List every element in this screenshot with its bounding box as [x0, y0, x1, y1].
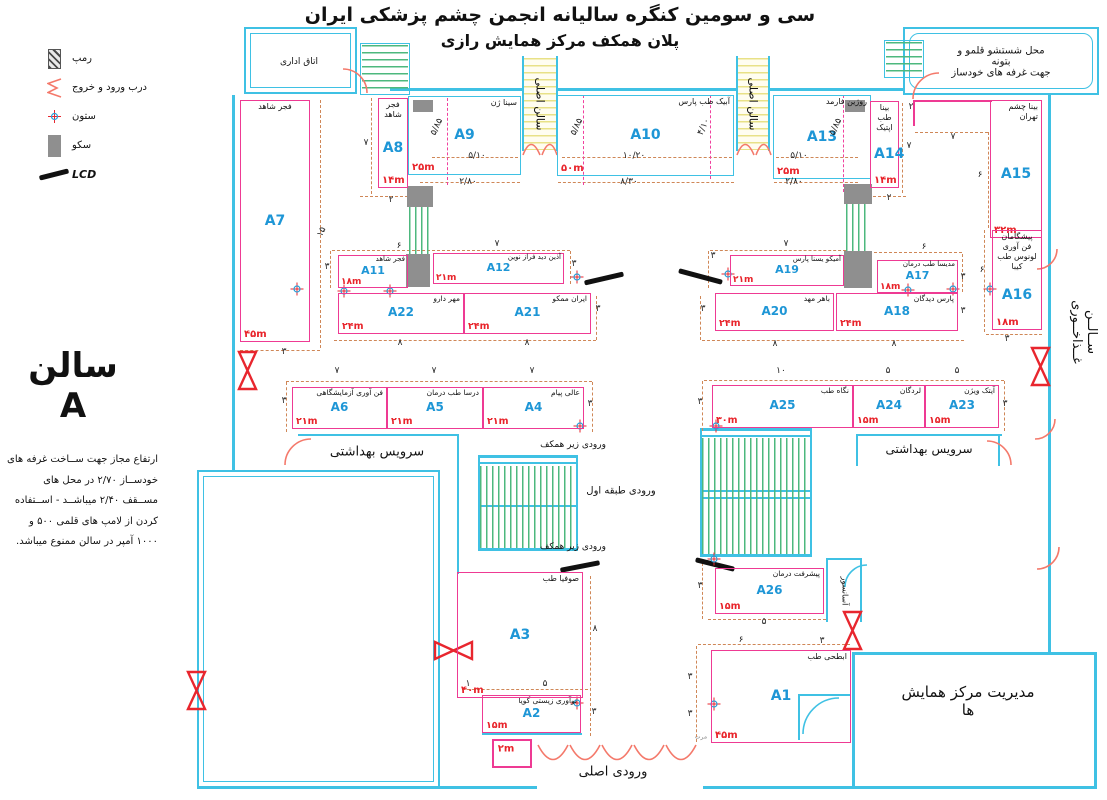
dim-label: ۵/۱۰: [790, 151, 808, 161]
dim-label: ۵/۱۰: [468, 151, 486, 161]
dimension-line: [590, 576, 591, 696]
dim-label: ۳: [1005, 334, 1010, 344]
booth-A5: درسا طب درمانA5۲۱m: [387, 387, 483, 429]
booth-company-label: پیشگامان فن آوری لونوس طب کیبا: [996, 232, 1038, 272]
door-arc-icon: [912, 72, 940, 104]
door-arc-icon: [338, 68, 368, 94]
booth-id-label: A16: [996, 287, 1038, 303]
wall-segment: [852, 652, 1097, 655]
booth-company-label: مدیسا طب درمان: [880, 261, 955, 268]
dimension-line: [704, 380, 1004, 381]
booth-A9: سینا ژنA9۲۵m: [408, 96, 521, 175]
booth-id-label: A22: [342, 305, 460, 319]
booth-A15: بینا چشم تهرانA15۳۲m: [990, 100, 1042, 238]
door-arcs-icon: [521, 140, 559, 161]
basement-entry-label-2: ورودی زیر همکف: [540, 542, 606, 552]
wall-box: [203, 476, 434, 782]
dimension-line: [360, 196, 408, 197]
dim-label: ۶: [739, 635, 744, 645]
construction-notes: ارتفاع مجاز جهت ســاخت غرفه های خودســاز…: [6, 450, 158, 553]
wc-left-label: سرویس بهداشتی: [330, 445, 424, 460]
dimension-line: [596, 296, 597, 340]
dimension-line: [708, 251, 709, 288]
dimension-line: [698, 644, 850, 645]
legend-row-platform: سکو: [36, 131, 147, 160]
dim-label: ۳: [688, 709, 693, 719]
booth-id-label: A5: [391, 400, 479, 414]
lcd-bar: [560, 560, 600, 573]
booth-company-label: بینا چشم تهران: [994, 102, 1038, 122]
dimension-line: [286, 381, 592, 382]
booth-company-label: فجر شاهد: [341, 256, 405, 263]
platform: [844, 184, 872, 204]
mert-label: مرت: [695, 734, 707, 741]
dim-label: ۸: [525, 338, 530, 348]
booth-area-label: ۴۵m: [244, 329, 306, 340]
booth-company-label: باهر مهد: [719, 295, 830, 303]
stairs-hatch: [362, 45, 408, 93]
dimension-line: [286, 382, 287, 432]
booth-id-label: A11: [341, 265, 405, 276]
wall-segment: [390, 88, 524, 91]
wc-right-label: سرویس بهداشتی: [885, 442, 972, 456]
booth-area-label: ۴۵m: [715, 730, 847, 741]
congress-title: سی و سومین کنگره سالیانه انجمن چشم پزشکی…: [270, 4, 850, 26]
main-entrance-label: ورودی اصلی: [579, 765, 648, 780]
booth-company-label: روژین فارمد: [777, 97, 867, 107]
legend-row-column: ستون: [36, 102, 147, 131]
booth-area-label: ۲۵m: [777, 166, 867, 177]
dim-label: ۱: [466, 679, 471, 689]
dim-label: ۳: [688, 672, 693, 682]
booth-id-label: A7: [244, 213, 306, 229]
booth-area-label: ۱۵m: [929, 415, 995, 426]
booth-id-label: A4: [487, 400, 580, 414]
dim-label: ۲: [389, 195, 394, 205]
dim-label: ۳: [325, 262, 330, 272]
booth-id-label: A1: [715, 688, 847, 704]
dim-label: ۲: [909, 102, 914, 112]
booth-id-label: A13: [777, 129, 867, 145]
admin-office-label: اتاق اداری: [280, 57, 318, 67]
dim-label: ۳: [282, 396, 287, 406]
column-icon: [708, 551, 721, 570]
dim-label: ۵: [955, 366, 960, 376]
stairs-hatch: [886, 42, 922, 76]
booth-id-label: A18: [840, 304, 954, 318]
dimension-line: [371, 98, 372, 194]
booth-area-label: ۲۱m: [733, 276, 841, 285]
booth-company-label: پیشرفت درمان: [719, 570, 820, 578]
booth-A11: فجر شاهدA11۱۸m: [338, 255, 408, 288]
booth-id-label: A8: [382, 140, 404, 156]
dim-label: ۸: [398, 338, 403, 348]
column-icon: [571, 269, 584, 288]
booth-company-label: آیتک ویژن: [929, 387, 995, 395]
dim-label: ۷: [951, 132, 956, 142]
booth-company-label: ایران ممکو: [468, 295, 587, 303]
booth-id-label: A3: [461, 627, 579, 643]
dim-label: ۷: [495, 239, 500, 249]
booth-id-label: A6: [296, 400, 383, 414]
booth-company-label: فجر شاهد: [382, 100, 404, 120]
dim-label: ۲/۸۰: [459, 177, 477, 187]
door-arcs-icon: [735, 140, 773, 161]
lcd-bar: [584, 272, 624, 286]
booth-area-label: ۱۸m: [880, 283, 955, 292]
main-hall-label-1: سالن اصلی: [534, 78, 547, 131]
wall-segment: [852, 652, 855, 788]
booth-id-label: A2: [486, 706, 577, 720]
booth-A14: بینا طب اپتیکA14۱۴m: [870, 101, 899, 188]
dim-label: ۷: [907, 141, 912, 151]
booth-A18: پارس دیدگانA18۲۴m: [836, 293, 958, 331]
dim-label: ۲/۸۰: [785, 177, 803, 187]
dim-label: ۳: [820, 636, 825, 646]
booth-area-label: ۵۰m: [561, 163, 730, 174]
dim-label: ۳: [698, 581, 703, 591]
wall-segment: [768, 56, 770, 151]
dim-label: ۶: [978, 170, 983, 180]
booth-A3: صوفیا طبA3۴۰m: [457, 572, 583, 698]
platform-icon: [36, 135, 72, 157]
dim-label: ۸/۳۰: [620, 177, 638, 187]
column-icon: [36, 110, 72, 123]
hall-title: سالن A: [14, 346, 132, 426]
dim-label: ۵: [543, 679, 548, 689]
wall-segment: [232, 95, 235, 472]
booth-id-label: A17: [880, 270, 955, 281]
dimension-line: [696, 646, 697, 742]
main-hall-label-2: سالن اصلی: [747, 78, 760, 131]
booth-area-label: ۲۱m: [436, 274, 561, 283]
legend-label-platform: سکو: [72, 140, 91, 151]
wall-segment: [478, 455, 578, 458]
booth-A2: نوآوری زیستی گویاA2۱۵m: [482, 695, 581, 733]
booth-area-label: ۱۵m: [486, 720, 577, 731]
basement-entry-label-1: ورودی زیر همکف: [540, 440, 606, 450]
booth-company-label: صوفیا طب: [461, 574, 579, 584]
dim-label: ۸: [892, 339, 897, 349]
booth-A24: لردگانA24۱۵m: [853, 385, 925, 428]
door-arc-icon: [982, 440, 1012, 466]
dim-label: ۳: [698, 397, 703, 407]
dim-label: ۵: [762, 617, 767, 627]
dim-label: ۶: [922, 242, 927, 252]
booth-A19: آمیکو یسنا پارسA19۲۱m: [730, 255, 844, 286]
door-hourglass-icon: [186, 670, 207, 715]
wall-segment: [810, 428, 812, 557]
dim-label: ۷: [784, 239, 789, 249]
wall-segment: [826, 558, 828, 622]
booth-area-label: ۱۴m: [382, 175, 404, 186]
booth-area-label: ۱۸m: [341, 278, 405, 287]
dimension-line: [708, 619, 826, 620]
wall-segment: [298, 434, 459, 436]
wash-room-label: محل شستشو قلمو و بتونه جهت غرفه های خودس…: [948, 46, 1054, 79]
booth-id-label: A25: [716, 398, 849, 412]
booth-A13: روژین فارمدA13۲۵m: [773, 95, 871, 179]
stairs-hatch: [409, 207, 431, 254]
door-arc-icon: [1034, 414, 1056, 440]
dim-label: ۳: [701, 304, 706, 314]
plan-subtitle: پلان همکف مرکز همایش رازی: [270, 31, 850, 50]
legend-row-lcd: LCD: [36, 160, 147, 189]
booth-area-label: ۲۴m: [719, 318, 830, 329]
booth-id-label: A19: [733, 264, 841, 275]
dimension-line: [700, 296, 701, 340]
dimension-line: [320, 100, 321, 348]
wall-segment: [482, 733, 582, 735]
booth-area-label: ۳۰m: [716, 415, 849, 426]
booth-A25: نگاه طبA25۳۰m: [712, 385, 853, 428]
legend-label-ramp: رمپ: [72, 53, 92, 64]
dim-label: ۳: [711, 251, 716, 261]
dim-label: ۸: [593, 624, 598, 634]
wall-segment: [768, 88, 904, 91]
wall-segment: [826, 558, 862, 560]
booth-area-label: ۲۴m: [342, 321, 460, 332]
dimension-line: [590, 698, 591, 736]
elevator-label: آسانسور: [841, 577, 850, 606]
booth-A21: ایران ممکوA21۲۴m: [464, 293, 591, 334]
booth-area-label: ۴۰m: [461, 685, 579, 696]
dim-label: ۱۰/۲۰: [623, 151, 645, 161]
dining-hall-label: ســالــن غــذاخــوری: [1069, 300, 1099, 364]
wall-segment: [856, 434, 1002, 436]
booth-company-label: مهر دارو: [342, 295, 460, 303]
dim-label: ۷: [530, 366, 535, 376]
stairs-hatch: [846, 204, 870, 251]
dim-label: ۳: [592, 707, 597, 717]
dimension-line: [332, 250, 570, 251]
dimension-line: [334, 340, 596, 341]
booth-company-label: عالی پیام: [487, 389, 580, 397]
dimension-line: [710, 250, 846, 251]
booth-company-label: درسا طب درمان: [391, 389, 479, 397]
booth-area-label: ۱۸m: [996, 317, 1038, 328]
dim-label: ۶: [397, 241, 402, 251]
dim-label: ۳: [282, 347, 287, 357]
booth-A26: پیشرفت درمانA26۱۵m: [715, 568, 824, 614]
booth-area-label: ۲۴m: [468, 321, 587, 332]
dim-label: ۲: [887, 193, 892, 203]
dimension-line: [702, 563, 703, 619]
dim-label: ۱۵: [315, 226, 328, 239]
dimension-line: [988, 132, 989, 228]
page-title: سی و سومین کنگره سالیانه انجمن چشم پزشکی…: [270, 4, 850, 50]
dim-label: ۳: [596, 304, 601, 314]
wall-segment: [856, 434, 858, 466]
legend-row-door: درب ورود و خروج: [36, 73, 147, 102]
booth-A4: عالی پیامA4۲۱m: [483, 387, 584, 429]
dimension-line: [702, 340, 964, 341]
area-label: ۲m: [498, 744, 515, 755]
dim-label: ۶: [980, 265, 985, 275]
booth-company-label: پارس دیدگان: [840, 295, 954, 303]
booth-company-label: ابطحی طب: [715, 652, 847, 662]
door-hourglass-icon: [842, 610, 863, 655]
legend-label-column: ستون: [72, 111, 96, 122]
dim-label: ۳: [961, 306, 966, 316]
booth-area-label: ۱۵m: [857, 415, 921, 426]
booth-area-label: ۱۵m: [719, 601, 820, 612]
wall-segment: [457, 434, 459, 574]
door-hourglass-icon: [1030, 346, 1051, 391]
dimension-line: [558, 182, 734, 183]
booth-company-label: فن آوری آزمایشگاهی: [296, 389, 383, 397]
legend: رمپ درب ورود و خروج ستون سکو LCD: [36, 44, 147, 189]
lcd-icon: [36, 172, 72, 177]
wall-segment: [703, 786, 1097, 789]
wall-segment: [478, 462, 578, 464]
platform: [844, 251, 872, 288]
stairs-hatch: [480, 466, 576, 548]
booth-A10: آبیک طب پارسA10۵۰m: [557, 95, 734, 176]
booth-id-label: A20: [719, 304, 830, 318]
booth-id-label: A14: [874, 146, 895, 162]
door-arc-icon: [284, 438, 312, 470]
booth-A23: آیتک ویژنA23۱۵m: [925, 385, 999, 428]
dim-label: ۳: [1003, 399, 1008, 409]
booth-area-label: ۲۱m: [391, 416, 479, 427]
booth-id-label: A21: [468, 305, 587, 319]
booth-A12: آذین دید فراز نوینA12۲۱m: [433, 253, 564, 284]
wall-segment: [556, 88, 738, 91]
stairs-hatch: [702, 438, 810, 554]
booth-A22: مهر داروA22۲۴m: [338, 293, 464, 334]
wall-segment: [576, 455, 578, 551]
booth-area-label: ۱۴m: [874, 175, 895, 186]
entry-exit-door-icon: [36, 78, 72, 98]
plan-canvas: سی و سومین کنگره سالیانه انجمن چشم پزشکی…: [0, 0, 1107, 800]
dim-label: ۳: [588, 399, 593, 409]
booth-area-label: ۲۴m: [840, 318, 954, 329]
platform: [407, 186, 433, 207]
booth-id-label: A24: [857, 398, 921, 412]
booth-A6: فن آوری آزمایشگاهیA6۲۱m: [292, 387, 387, 429]
booth-id-label: A26: [719, 583, 820, 597]
booth-id-label: A9: [412, 127, 517, 143]
dim-label: ۳: [961, 272, 966, 282]
booth-A8: فجر شاهدA8۱۴m: [378, 98, 408, 188]
booth-company-label: فجر شاهد: [244, 102, 306, 112]
dim-label: ۷: [364, 138, 369, 148]
booth-company-label: نوآوری زیستی گویا: [486, 697, 577, 705]
dim-label: ۷: [432, 366, 437, 376]
booth-A16: پیشگامان فن آوری لونوس طب کیباA16۱۸m: [992, 230, 1042, 330]
platform: [406, 254, 430, 287]
lcd-bar: [678, 268, 723, 284]
booth-A7: فجر شاهدA7۴۵m: [240, 100, 310, 342]
dim-label: ۱۰: [776, 366, 786, 376]
booth-area-label: ۲۱m: [296, 416, 383, 427]
dim-label: ۵: [886, 366, 891, 376]
booth-id-label: A23: [929, 398, 995, 412]
dim-label: ۳: [572, 259, 577, 269]
booth-company-label: نگاه طب: [716, 387, 849, 395]
legend-label-lcd: LCD: [72, 168, 96, 181]
door-arc-icon: [1036, 542, 1060, 570]
booth-id-label: A12: [436, 262, 561, 273]
dimension-line: [330, 251, 331, 288]
ramp-icon: [36, 49, 72, 69]
wall-segment: [1094, 652, 1097, 788]
first-floor-entry-label: ورودی طبقه اول: [586, 486, 655, 497]
legend-label-door: درب ورود و خروج: [72, 82, 147, 93]
dim-label: ۷: [335, 366, 340, 376]
booth-id-label: A15: [994, 166, 1038, 182]
booth-A17: مدیسا طب درمانA17۱۸m: [877, 260, 958, 293]
door-hourglass-icon: [237, 350, 258, 395]
booth-A20: باهر مهدA20۲۴m: [715, 293, 834, 331]
booth-company-label: سینا ژن: [412, 98, 517, 108]
booth-area-label: ۲۱m: [487, 416, 580, 427]
booth-area-label: ۲۵m: [412, 162, 517, 173]
booth-company-label: لردگان: [857, 387, 921, 395]
management-label: مدیریت مرکز همایش ها: [899, 683, 1038, 719]
booth-A1: ابطحی طبA1۴۵m: [711, 650, 851, 743]
dim-label: ۸: [773, 339, 778, 349]
dimension-line: [874, 252, 962, 253]
legend-row-ramp: رمپ: [36, 44, 147, 73]
booth-company-label: بینا طب اپتیک: [874, 103, 895, 133]
booth-company-label: آبیک طب پارس: [561, 97, 730, 107]
dimension-line: [986, 334, 1042, 335]
